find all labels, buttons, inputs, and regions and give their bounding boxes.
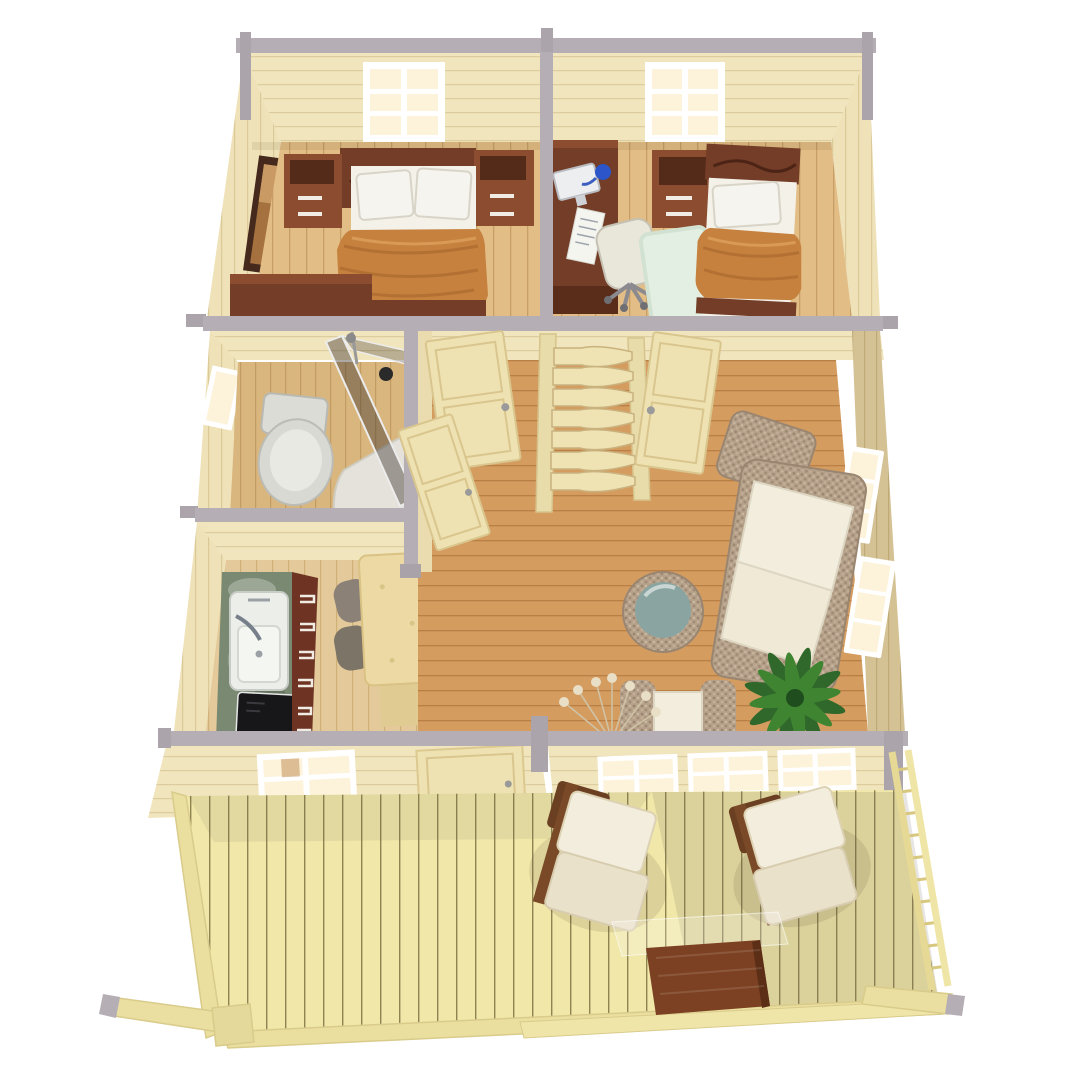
shower-head [346,333,356,343]
bath-kitchen-cap [195,508,412,522]
nightstand [652,150,714,228]
drain [256,651,263,658]
shelf-stairs [536,334,650,512]
single-bed [694,143,809,320]
floor-plan-render [0,0,1080,1080]
mid-wall [186,314,898,331]
coffee-table [646,940,770,1015]
corner-post-top-right [862,32,873,120]
back-wall [236,38,876,142]
shower-valve [379,367,393,381]
facade-post-left [158,728,171,748]
corner-post-top-center [541,28,553,52]
nightstand-right [474,150,534,226]
facade-post-center [531,716,548,772]
kitchen-sink [230,592,288,690]
back-wall-cap [236,38,876,53]
cabin-render-svg [0,0,1080,1080]
bedroom1-window [363,62,445,142]
desk-lamp [595,164,611,180]
corner-post-top-left [240,32,251,120]
glass-top-ottoman [623,572,703,652]
nightstand-left [284,154,342,228]
bedroom-single [548,140,809,328]
mid-wall-cap [203,316,883,331]
bedroom-divider-cap [540,40,553,320]
wall-end-cap [400,564,421,578]
dresser [230,274,372,320]
bedroom2-window [645,62,725,142]
